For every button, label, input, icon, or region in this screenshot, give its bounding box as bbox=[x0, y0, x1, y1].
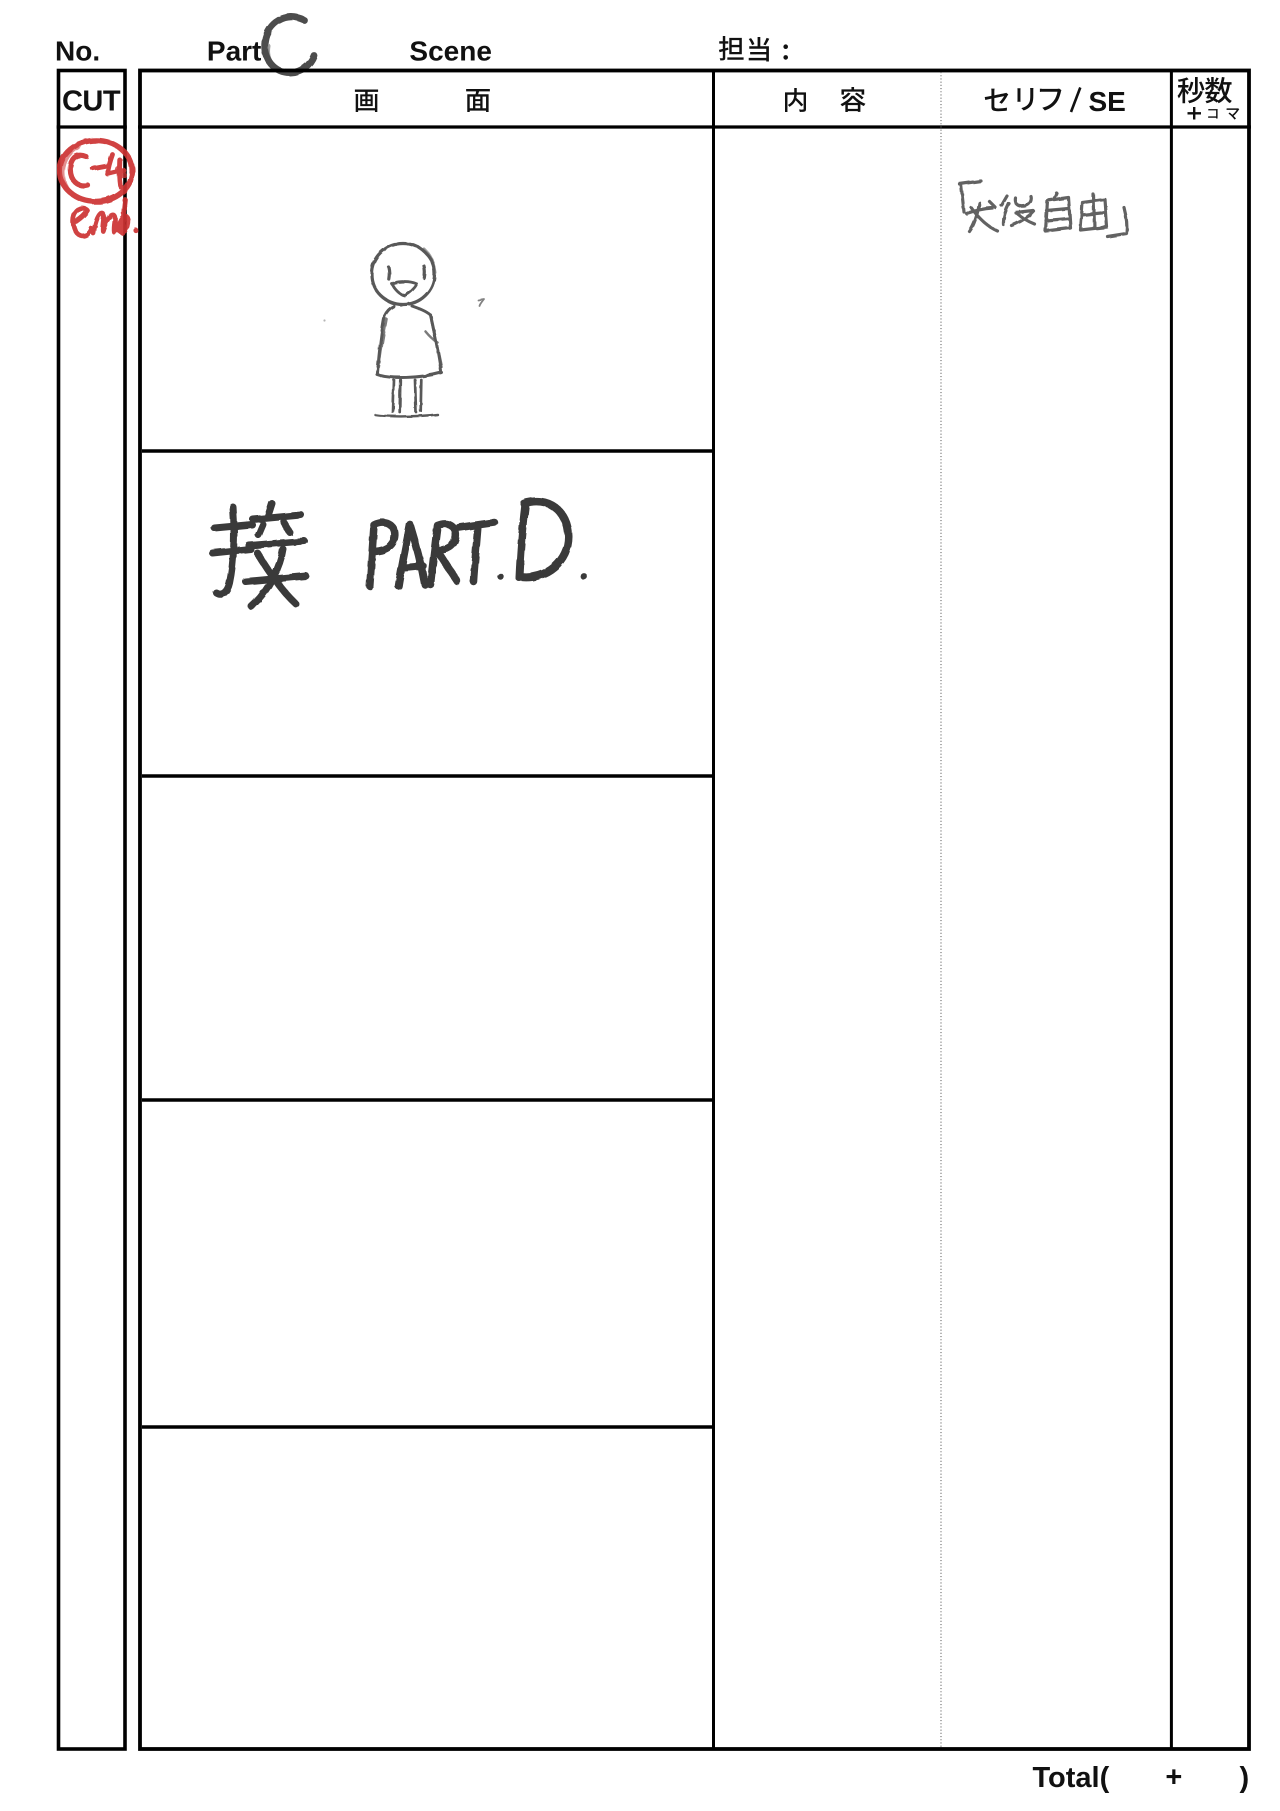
svg-text:No.: No. bbox=[55, 36, 100, 67]
svg-text:CUT: CUT bbox=[62, 86, 121, 118]
svg-text:Scene: Scene bbox=[409, 36, 492, 67]
svg-text:SE: SE bbox=[1089, 86, 1126, 117]
svg-text:Part: Part bbox=[207, 36, 261, 67]
svg-text:Total(: Total( bbox=[1033, 1762, 1110, 1794]
svg-text:): ) bbox=[1240, 1762, 1250, 1794]
svg-text:+: + bbox=[1165, 1762, 1182, 1794]
